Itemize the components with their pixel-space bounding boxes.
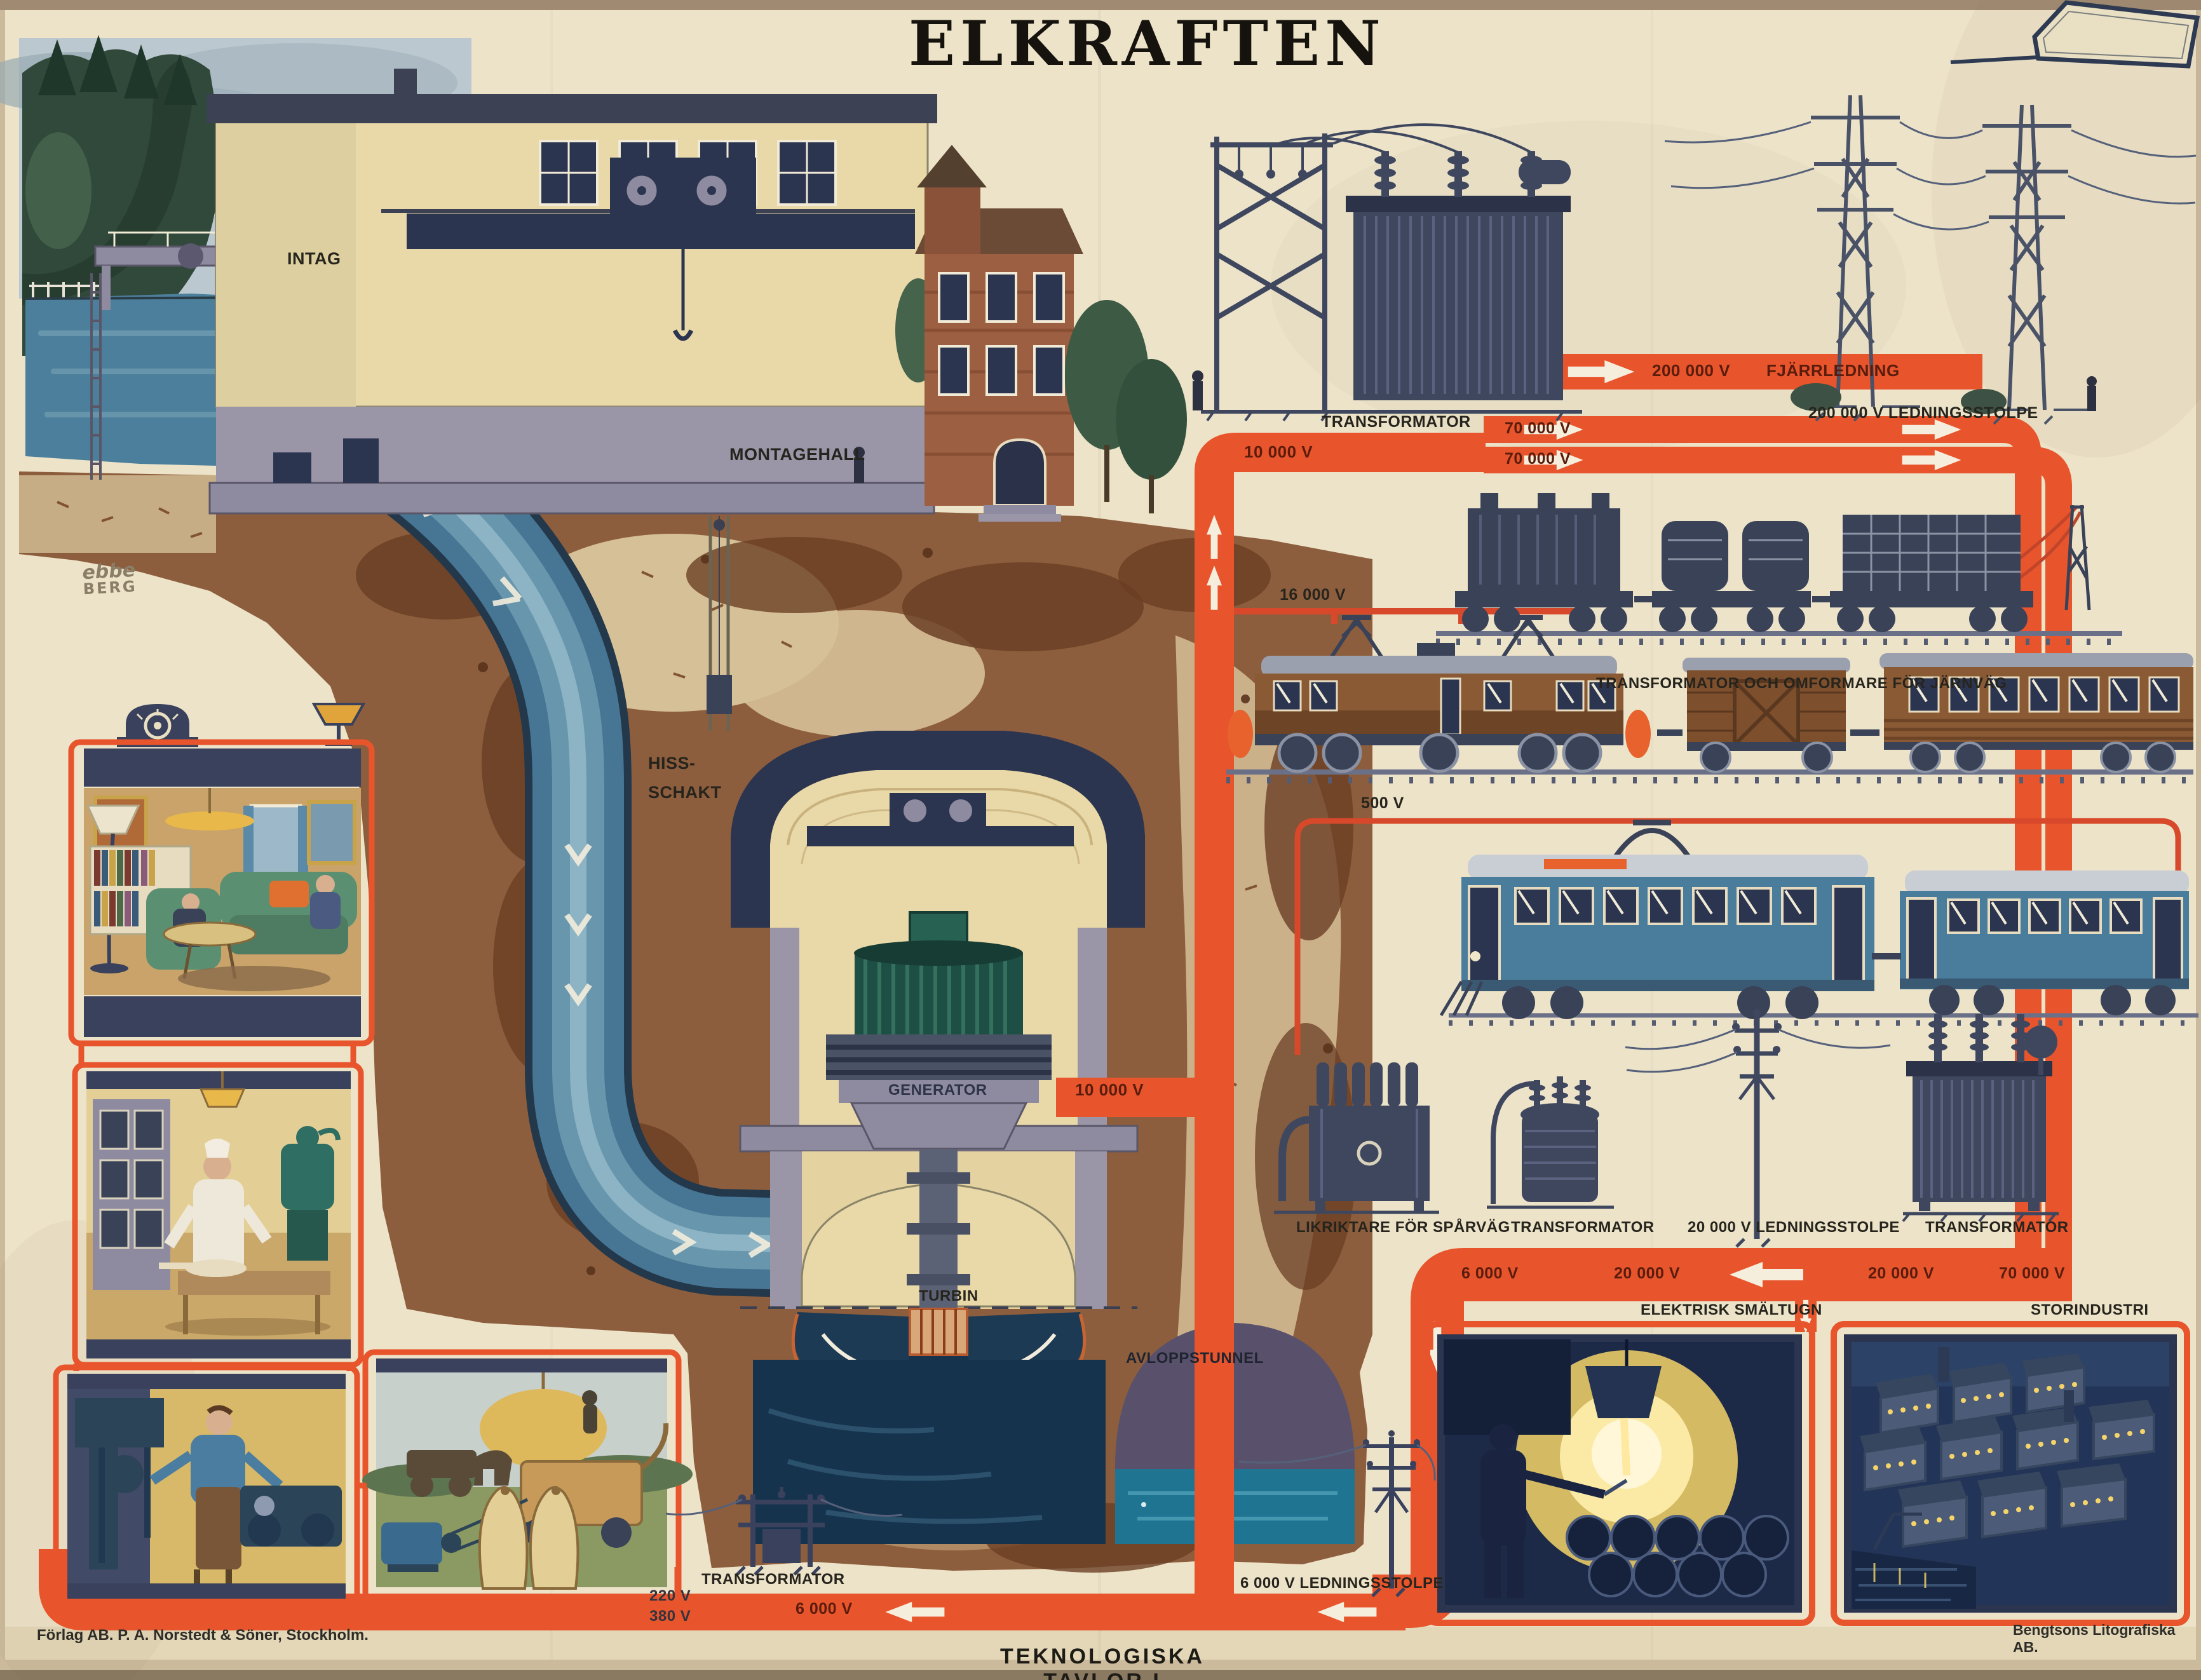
label-band-6000: 6 000 V (1461, 1264, 1519, 1283)
artist-last-name: BERG (83, 579, 137, 595)
label-turbine: TURBIN (919, 1287, 979, 1305)
label-town-transformer: TRANSFORMATOR (1511, 1219, 1655, 1236)
panel-farm (362, 1352, 693, 1601)
label-band-20000-a: 20 000 V (1614, 1264, 1680, 1283)
label-assembly-hall: MONTAGEHALL (729, 445, 865, 464)
label-home-feed: 6 000 V (796, 1600, 853, 1618)
label-railway-caption: TRANSFORMATOR OCH OMFORMARE FÖR JÄRNVÄG (1596, 675, 2007, 693)
poster-elkraften: ELKRAFTEN INTAG MONTAGEHALL HISS- SCHAKT… (0, 0, 2201, 1680)
label-trunk-line: FJÄRRLEDNING (1766, 361, 1900, 381)
panel-living-room (71, 704, 372, 1043)
artist-signature: ebbe BERG (82, 562, 137, 596)
label-feeder-voltage: 10 000 V (1244, 442, 1313, 462)
elevator-shaft (707, 516, 732, 731)
label-hv-line-1: 70 000 V (1505, 419, 1571, 438)
label-tram-voltage: 500 V (1361, 794, 1404, 813)
label-furnace: ELEKTRISK SMÄLTUGN (1641, 1301, 1822, 1319)
label-band-20000-b: 20 000 V (1868, 1264, 1934, 1283)
label-industry: STORINDUSTRI (2031, 1301, 2149, 1319)
label-home-v2: 380 V (649, 1608, 691, 1625)
label-station-transformer: TRANSFORMATOR (1322, 413, 1471, 431)
label-town-pylon: 20 000 V LEDNINGSSTOLPE (1688, 1219, 1900, 1236)
label-local-pylon: 6 000 V LEDNINGSSTOLPE (1240, 1575, 1444, 1592)
label-local-transformer: TRANSFORMATOR (701, 1571, 845, 1589)
series-title: TEKNOLOGISKA TAVLOR I (950, 1644, 1255, 1680)
label-generator: GENERATOR (888, 1081, 987, 1099)
label-lift-shaft-2: SCHAKT (648, 783, 722, 803)
person-silhouette (1192, 370, 1203, 410)
printer-imprint: Bengtsons Litografiska AB. (2013, 1622, 2201, 1656)
panel-storindustri (1834, 1324, 2187, 1623)
farmer-silhouette (582, 1390, 597, 1433)
label-lift-shaft-1: HISS- (648, 754, 696, 773)
panel-smelting-furnace (1427, 1324, 1812, 1623)
label-home-v1: 220 V (649, 1587, 691, 1605)
poster-title: ELKRAFTEN (909, 8, 1328, 79)
label-trunk-voltage: 200 000 V (1652, 361, 1730, 381)
panel-machine-shop (56, 1367, 357, 1604)
label-rectifier: LIKRIKTARE FÖR SPÅRVÄG (1296, 1219, 1510, 1236)
panel-bakery (75, 1065, 361, 1365)
label-band-70000: 70 000 V (1999, 1264, 2065, 1283)
label-tailrace: AVLOPPSTUNNEL (1126, 1350, 1264, 1367)
label-intake: INTAG (287, 249, 341, 269)
label-railway-voltage: 16 000 V (1280, 586, 1346, 604)
label-industry-transformer: TRANSFORMATOR (1925, 1219, 2069, 1236)
person-silhouette (2087, 376, 2097, 411)
publisher-imprint: Förlag AB. P. A. Norstedt & Söner, Stock… (37, 1627, 369, 1644)
label-hv-line-2: 70 000 V (1505, 450, 1571, 468)
label-trunk-pylon: 200 000 V LEDNINGSSTOLPE (1808, 404, 2038, 423)
label-generator-voltage: 10 000 V (1075, 1080, 1144, 1100)
